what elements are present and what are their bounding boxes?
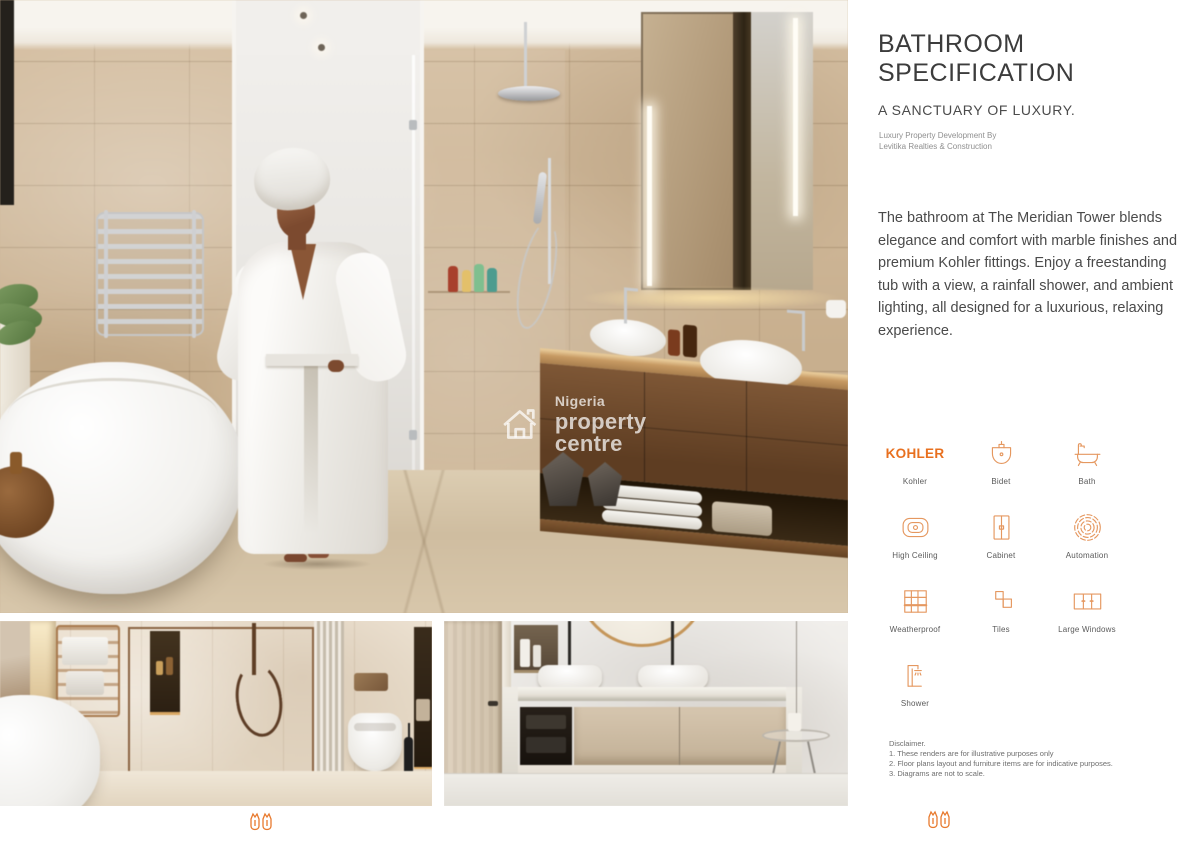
feature-item: Weatherproof: [872, 582, 958, 656]
high-ceiling-icon: [899, 508, 932, 546]
vanity-drawers: [574, 707, 786, 765]
door-handle: [488, 701, 498, 706]
faucet: [802, 311, 805, 351]
disclaimer-line: 2. Floor plans layout and furniture item…: [889, 759, 1113, 769]
automation-icon: [1071, 508, 1104, 546]
towel: [416, 699, 430, 721]
large-windows-icon: [1071, 582, 1104, 620]
towel: [66, 671, 104, 695]
counter-jar: [826, 300, 846, 318]
drawer-joint: [679, 707, 680, 765]
feature-label: Tiles: [992, 625, 1010, 634]
cabinet-icon: [985, 508, 1018, 546]
developer-emblem-icon: [249, 810, 275, 834]
foot: [284, 554, 307, 562]
weatherproof-icon: [899, 582, 932, 620]
robe-opening-shadow: [304, 366, 318, 534]
toiletry-bottle: [462, 270, 471, 292]
dark-towel: [526, 715, 566, 729]
glass-hinge: [409, 430, 417, 440]
black-faucet: [568, 621, 571, 667]
shower-frame: [128, 627, 130, 773]
byline-line2: Levitika Realties & Construction: [879, 142, 996, 153]
feature-label: Automation: [1066, 551, 1108, 560]
kohler-wordmark-icon: KOHLER: [886, 434, 945, 472]
towel-niche: [414, 627, 432, 769]
candle: [788, 713, 801, 731]
wall-hung-toilet: [348, 713, 402, 771]
disclaimer: Disclaimer. 1. These renders are for ill…: [889, 739, 1113, 779]
developer-byline: Luxury Property Development By Levitika …: [879, 131, 996, 152]
hand: [328, 360, 344, 372]
woman-in-bathrobe: [232, 148, 392, 568]
tiles-icon: [985, 582, 1018, 620]
shower-icon: [899, 656, 932, 694]
secondary-bathroom-photo: [0, 621, 432, 806]
page-title-line1: BATHROOM: [878, 30, 1074, 59]
figure-shadow: [262, 558, 372, 570]
description-paragraph: The bathroom at The Meridian Tower blend…: [878, 207, 1184, 343]
page-subtitle: A SANCTUARY OF LUXURY.: [878, 102, 1075, 118]
dark-towel: [526, 737, 566, 753]
towel: [62, 637, 108, 665]
soap-bottle: [668, 329, 680, 356]
head-towel: [251, 144, 333, 214]
main-bathroom-photo: Nigeria property centre: [0, 0, 848, 613]
feature-label: Shower: [901, 699, 929, 708]
robe-belt: [266, 354, 358, 366]
watermark-brand-top: Nigeria: [555, 394, 720, 408]
stool-bottle: [10, 452, 22, 474]
black-faucet: [671, 621, 674, 667]
mirror-led-strip: [793, 18, 798, 216]
fluted-glass-divider: [314, 621, 344, 771]
main-photo-layers: [0, 0, 848, 613]
vanity-mirror-right: [751, 12, 813, 290]
feature-item: High Ceiling: [872, 508, 958, 582]
toiletry-bottle: [166, 657, 173, 675]
byline-line1: Luxury Property Development By: [879, 131, 996, 142]
toiletry-bottle: [474, 264, 484, 292]
feature-item: KOHLER Kohler: [872, 434, 958, 508]
watermark-brand-bottom: property centre: [555, 411, 720, 455]
nigeria-property-centre-watermark: Nigeria property centre: [500, 396, 720, 452]
cove-light-glow: [580, 286, 840, 310]
feature-label: Bidet: [991, 477, 1010, 486]
disclaimer-line: 3. Diagrams are not to scale.: [889, 769, 1113, 779]
disclaimer-heading: Disclaimer.: [889, 739, 1113, 749]
feature-label: Kohler: [903, 477, 927, 486]
flush-plate: [354, 673, 388, 691]
bathroom-specification-flyer: Nigeria property centre: [0, 0, 1200, 849]
glass-hinge: [409, 120, 417, 130]
page-title-line2: SPECIFICATION: [878, 59, 1074, 88]
mirror-wood-divider: [733, 12, 751, 290]
mirror-led-strip: [647, 106, 652, 286]
feature-item: Tiles: [958, 582, 1044, 656]
rain-shower-stem: [524, 22, 527, 88]
feature-item: Shower: [872, 656, 958, 730]
feature-item: Bidet: [958, 434, 1044, 508]
developer-emblem-icon: [927, 808, 953, 832]
shower-niche: [150, 631, 180, 715]
feature-item: Large Windows: [1044, 582, 1130, 656]
page-title: BATHROOM SPECIFICATION: [878, 30, 1074, 88]
floor: [444, 773, 848, 806]
marble-countertop: [502, 687, 802, 701]
ceiling-spotlight: [300, 12, 307, 19]
feature-label: Cabinet: [987, 551, 1016, 560]
disclaimer-line: 1. These renders are for illustrative pu…: [889, 749, 1113, 759]
feature-item: Automation: [1044, 508, 1130, 582]
feature-item: Bath: [1044, 434, 1130, 508]
bath-icon: [1071, 434, 1104, 472]
canister: [533, 645, 541, 667]
vessel-sink: [538, 665, 602, 689]
shower-frame: [128, 627, 314, 629]
npc-house-icon: [500, 402, 546, 446]
vanity-detail-photo: [444, 621, 848, 806]
beige-towel-stack: [712, 501, 772, 536]
vessel-sink: [638, 665, 708, 689]
canister: [520, 639, 530, 667]
feature-label: Weatherproof: [890, 625, 941, 634]
bidet-icon: [985, 434, 1018, 472]
faucet: [624, 287, 627, 323]
toiletry-bottle: [156, 661, 163, 675]
feature-item: Cabinet: [958, 508, 1044, 582]
rain-shower-head: [498, 86, 560, 101]
feature-grid: KOHLER Kohler Bidet Bath High Ceiling Ca…: [872, 434, 1134, 730]
feature-label: Bath: [1078, 477, 1095, 486]
feature-label: Large Windows: [1058, 625, 1116, 634]
window-frame: [0, 0, 14, 205]
soap-bottle: [683, 325, 697, 358]
toiletry-bottle: [448, 266, 458, 292]
ceiling-spotlight: [318, 44, 325, 51]
feature-label: High Ceiling: [892, 551, 938, 560]
pendant-cord: [796, 621, 797, 719]
towel-radiator: [96, 212, 204, 336]
toiletry-bottle: [487, 268, 497, 292]
